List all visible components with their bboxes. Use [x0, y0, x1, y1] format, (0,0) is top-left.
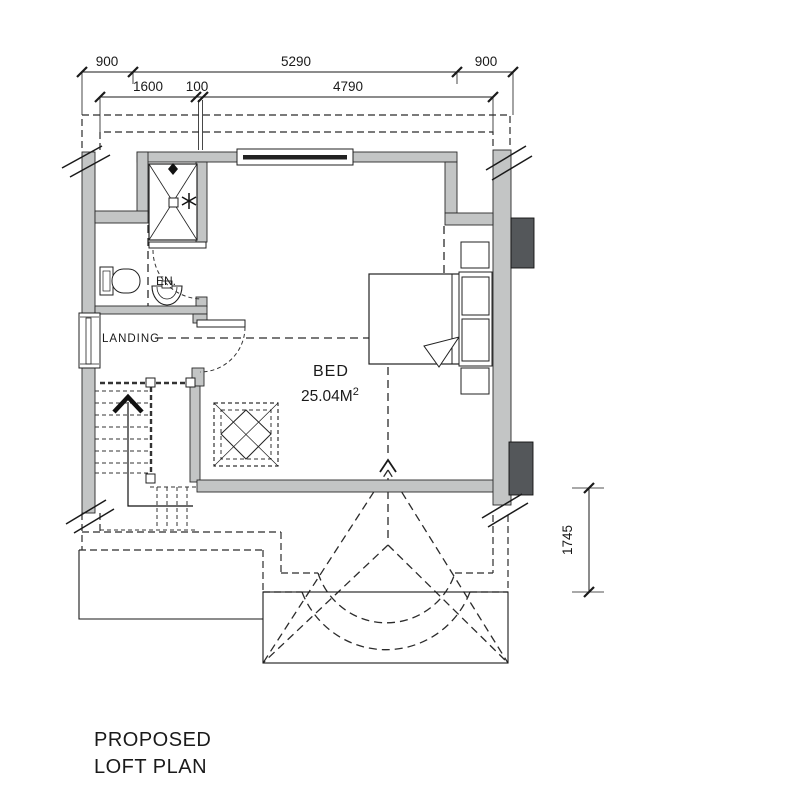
valley-line-right	[388, 545, 508, 663]
wall-right-jog-horizontal	[445, 213, 493, 225]
wall-stair-side	[190, 386, 200, 482]
wall-ensuite-west	[137, 152, 148, 213]
top-window	[237, 149, 353, 165]
dim-row2-left: 1600	[133, 79, 163, 94]
shower-drain	[169, 198, 178, 207]
dim-top-right: 900	[475, 54, 498, 69]
wall-top-right-of-window	[353, 152, 457, 162]
bedroom-label: BED	[313, 363, 349, 380]
bed	[369, 274, 460, 367]
hip-line-left	[263, 470, 388, 663]
dimension-right-side: 1745	[560, 483, 604, 597]
bedroom-door	[197, 320, 245, 372]
dim-top-middle: 5290	[281, 54, 311, 69]
stair-balustrade	[100, 383, 190, 474]
wall-wc-jog	[95, 211, 148, 223]
proposed-loft-plan-page: 900 5290 900 1600 100 4790 1745	[0, 0, 800, 793]
dim-right: 1745	[560, 525, 575, 555]
wardrobe-units	[459, 272, 492, 366]
ensuite-label: EN.	[156, 274, 176, 288]
valley-line-left	[263, 545, 388, 663]
wall-ensuite-south	[95, 306, 207, 314]
lower-roof-outline-left	[79, 550, 263, 619]
wall-right-jog-vertical	[445, 162, 457, 213]
bedside-table-bottom	[461, 368, 489, 394]
door-leaf	[197, 320, 245, 327]
room-labels: EN. LANDING BED 25.04M2	[102, 274, 359, 405]
stair-winders	[100, 487, 197, 530]
dim-top-left: 900	[96, 54, 119, 69]
hip-line-right	[388, 470, 508, 663]
door-swing-arc	[200, 327, 245, 372]
dim-row2-right: 4790	[333, 79, 363, 94]
wall-top-left-of-window	[137, 152, 237, 162]
wall-shower-east	[196, 162, 207, 242]
chimneys	[509, 218, 534, 495]
plan-title-line2: LOFT PLAN	[94, 756, 207, 778]
plan-title: PROPOSED LOFT PLAN	[94, 729, 211, 778]
landing-label: LANDING	[102, 333, 160, 345]
toilet	[100, 267, 140, 295]
toilet-bowl	[112, 269, 140, 293]
shower-screen	[149, 242, 206, 248]
staircase	[95, 378, 197, 530]
top-window-glazing	[243, 155, 347, 160]
shower	[149, 163, 206, 248]
chimney-upper	[511, 218, 534, 268]
dim-row2-middle: 100	[186, 79, 209, 94]
plan-title-line1: PROPOSED	[94, 729, 211, 751]
wall-bedroom-south	[197, 480, 511, 492]
floor-plan-svg: 900 5290 900 1600 100 4790 1745	[0, 0, 800, 793]
stair-direction-line	[128, 402, 193, 506]
bow-arc-inner	[318, 573, 455, 623]
bedroom-area-label: 25.04M2	[301, 386, 359, 405]
wall-left-upper	[82, 152, 95, 313]
wall-left-lower	[82, 368, 95, 513]
rooflight	[214, 403, 278, 466]
bedside-table-top	[461, 242, 489, 268]
landing-window	[79, 313, 100, 368]
chimney-lower	[509, 442, 533, 495]
newel-posts	[146, 378, 195, 483]
wall-right	[493, 150, 511, 505]
